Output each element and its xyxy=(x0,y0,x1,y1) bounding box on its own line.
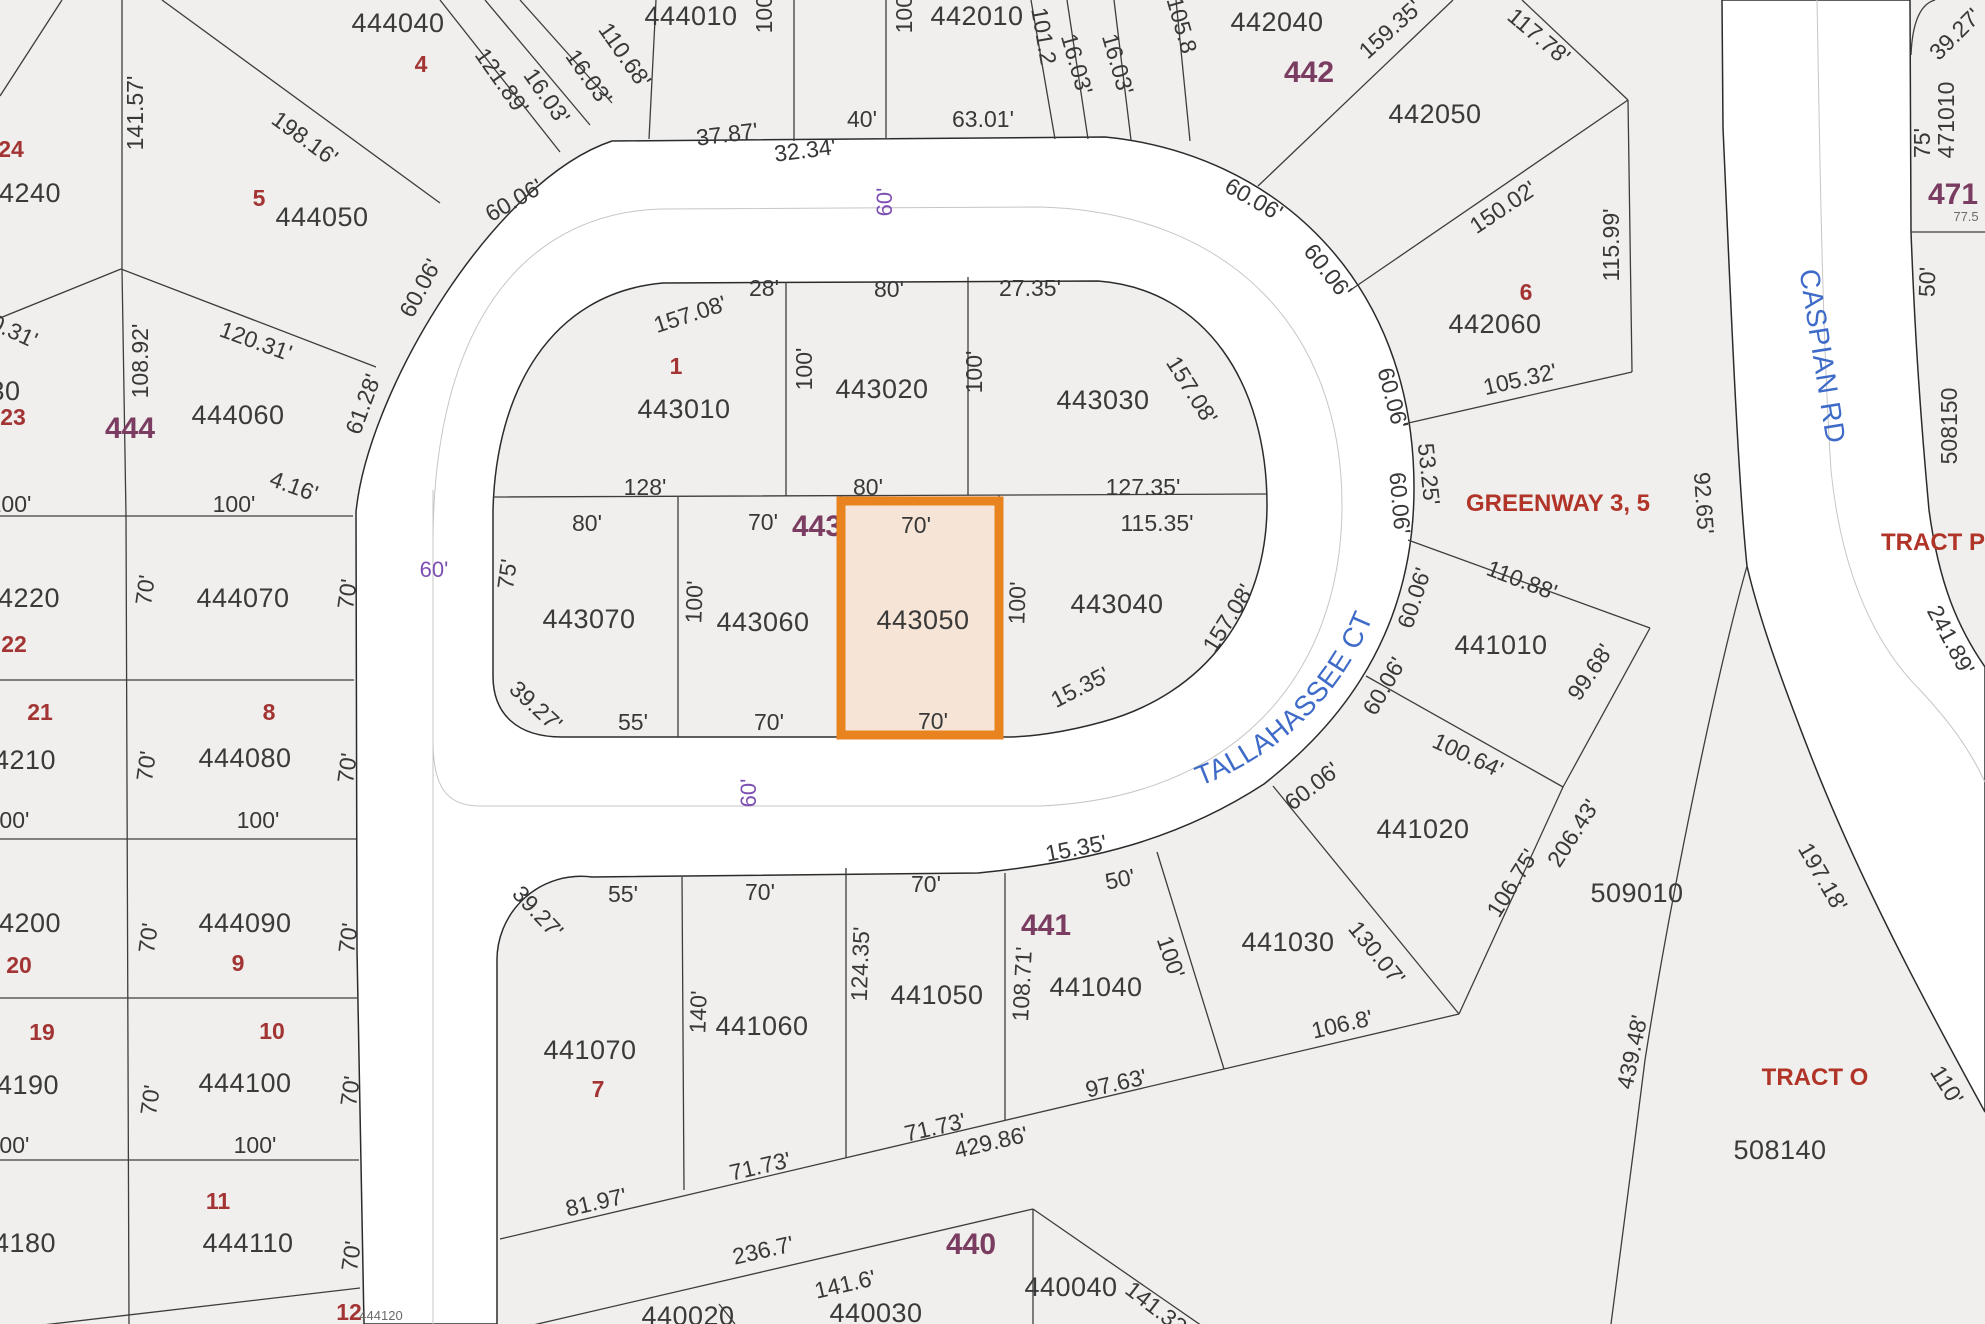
svg-text:443050: 443050 xyxy=(876,605,969,635)
svg-text:115.99': 115.99' xyxy=(1598,208,1624,281)
svg-text:443060: 443060 xyxy=(716,607,809,637)
svg-text:444050: 444050 xyxy=(275,202,368,232)
svg-text:440020: 440020 xyxy=(641,1301,734,1324)
svg-text:444100: 444100 xyxy=(198,1068,291,1098)
svg-text:441: 441 xyxy=(1021,909,1071,942)
svg-text:509010: 509010 xyxy=(1590,878,1683,908)
svg-text:60': 60' xyxy=(736,779,761,808)
svg-text:442010: 442010 xyxy=(930,1,1023,31)
svg-text:70': 70' xyxy=(131,749,161,782)
svg-text:12: 12 xyxy=(336,1299,362,1324)
svg-text:22: 22 xyxy=(1,631,27,657)
svg-text:27.35': 27.35' xyxy=(999,275,1061,301)
svg-text:100': 100' xyxy=(791,348,817,391)
svg-text:1: 1 xyxy=(670,353,683,379)
svg-text:75': 75' xyxy=(1909,128,1935,158)
svg-text:444070: 444070 xyxy=(196,583,289,613)
svg-text:441030: 441030 xyxy=(1241,927,1334,957)
svg-text:30: 30 xyxy=(0,376,21,406)
svg-text:442060: 442060 xyxy=(1448,309,1541,339)
svg-text:92.65': 92.65' xyxy=(1689,471,1719,535)
svg-text:444090: 444090 xyxy=(198,908,291,938)
svg-text:141.57': 141.57' xyxy=(122,76,148,151)
svg-text:55': 55' xyxy=(618,709,648,735)
svg-text:442050: 442050 xyxy=(1388,99,1481,129)
svg-text:440: 440 xyxy=(946,1228,996,1261)
svg-text:7: 7 xyxy=(592,1076,605,1102)
svg-text:GREENWAY 3, 5: GREENWAY 3, 5 xyxy=(1466,490,1650,517)
svg-text:443030: 443030 xyxy=(1056,385,1149,415)
svg-text:443040: 443040 xyxy=(1070,589,1163,619)
svg-text:100': 100' xyxy=(1003,581,1030,625)
svg-text:70': 70' xyxy=(133,921,163,954)
svg-text:19: 19 xyxy=(29,1019,55,1045)
svg-text:TRACT P: TRACT P xyxy=(1881,529,1985,556)
svg-text:70': 70' xyxy=(336,1239,366,1272)
svg-text:444040: 444040 xyxy=(351,8,444,38)
svg-text:441060: 441060 xyxy=(715,1011,808,1041)
svg-text:11: 11 xyxy=(206,1188,231,1214)
svg-text:100': 100' xyxy=(751,0,777,33)
svg-text:444110: 444110 xyxy=(202,1228,293,1258)
svg-text:124.35': 124.35' xyxy=(846,926,875,1002)
svg-text:442: 442 xyxy=(1284,56,1334,89)
svg-text:443070: 443070 xyxy=(542,604,635,634)
svg-text:70': 70' xyxy=(333,921,363,954)
svg-text:100': 100' xyxy=(237,807,280,833)
svg-text:70': 70' xyxy=(332,577,362,610)
svg-text:70': 70' xyxy=(745,879,775,905)
svg-text:4220: 4220 xyxy=(0,583,60,613)
svg-text:471010: 471010 xyxy=(1933,82,1959,159)
svg-text:115.35': 115.35' xyxy=(1120,510,1193,536)
svg-text:6: 6 xyxy=(1520,279,1533,305)
svg-text:100': 100' xyxy=(0,1132,29,1158)
svg-text:20: 20 xyxy=(6,952,32,978)
svg-text:441040: 441040 xyxy=(1049,972,1142,1002)
svg-text:443: 443 xyxy=(792,510,842,543)
svg-text:108.92': 108.92' xyxy=(127,324,153,399)
svg-text:444120: 444120 xyxy=(359,1308,402,1323)
svg-text:4240: 4240 xyxy=(0,178,61,208)
svg-text:60.06': 60.06' xyxy=(1384,471,1415,535)
svg-text:70': 70' xyxy=(911,871,941,897)
svg-text:100': 100' xyxy=(213,491,256,517)
svg-text:21: 21 xyxy=(27,699,53,725)
svg-text:4200: 4200 xyxy=(0,908,61,938)
svg-text:75': 75' xyxy=(492,557,522,590)
svg-text:443010: 443010 xyxy=(637,394,730,424)
svg-text:60': 60' xyxy=(872,188,897,217)
svg-text:23: 23 xyxy=(0,404,26,430)
svg-text:70': 70' xyxy=(754,709,784,735)
svg-text:80': 80' xyxy=(874,276,904,302)
svg-text:77.5: 77.5 xyxy=(1953,209,1978,224)
svg-text:55': 55' xyxy=(608,881,638,907)
svg-text:50': 50' xyxy=(1913,267,1940,298)
svg-text:TRACT O: TRACT O xyxy=(1762,1064,1869,1091)
svg-text:70': 70' xyxy=(332,751,362,784)
svg-text:440040: 440040 xyxy=(1024,1272,1117,1302)
svg-text:10: 10 xyxy=(259,1018,285,1044)
svg-text:70': 70' xyxy=(901,512,931,538)
svg-text:4: 4 xyxy=(415,51,428,77)
svg-text:443020: 443020 xyxy=(835,374,928,404)
svg-text:60': 60' xyxy=(420,557,449,582)
svg-text:100': 100' xyxy=(0,491,31,517)
svg-text:4190: 4190 xyxy=(0,1070,59,1100)
svg-text:4210: 4210 xyxy=(0,745,56,775)
svg-text:100': 100' xyxy=(0,807,29,833)
svg-text:8: 8 xyxy=(263,699,276,725)
svg-text:100': 100' xyxy=(891,0,917,33)
svg-text:70': 70' xyxy=(748,509,778,535)
svg-text:70': 70' xyxy=(918,708,948,734)
svg-text:442040: 442040 xyxy=(1230,7,1323,37)
svg-text:440030: 440030 xyxy=(829,1298,922,1324)
svg-text:70': 70' xyxy=(135,1083,165,1116)
svg-text:108.71': 108.71' xyxy=(1007,946,1037,1022)
svg-text:5: 5 xyxy=(253,185,266,211)
svg-text:128': 128' xyxy=(624,474,667,500)
svg-text:441070: 441070 xyxy=(543,1035,636,1065)
svg-text:24: 24 xyxy=(0,136,24,162)
svg-text:80': 80' xyxy=(572,510,602,536)
svg-text:444080: 444080 xyxy=(198,743,291,773)
svg-text:28': 28' xyxy=(749,275,779,301)
svg-text:441020: 441020 xyxy=(1376,814,1469,844)
svg-text:508150: 508150 xyxy=(1936,388,1962,465)
svg-text:70': 70' xyxy=(130,573,160,606)
svg-text:508140: 508140 xyxy=(1733,1135,1826,1165)
svg-text:441010: 441010 xyxy=(1454,630,1547,660)
svg-text:4180: 4180 xyxy=(0,1228,56,1258)
svg-text:40': 40' xyxy=(847,106,877,132)
svg-text:80': 80' xyxy=(853,474,883,500)
svg-text:100': 100' xyxy=(680,580,707,624)
svg-text:127.35': 127.35' xyxy=(1106,474,1181,500)
svg-text:441050: 441050 xyxy=(890,980,983,1010)
svg-text:9: 9 xyxy=(232,950,245,976)
svg-text:140': 140' xyxy=(684,990,711,1034)
svg-text:444: 444 xyxy=(105,412,155,445)
svg-text:100': 100' xyxy=(961,351,987,394)
svg-text:100': 100' xyxy=(234,1132,277,1158)
svg-text:444010: 444010 xyxy=(644,1,737,31)
svg-text:471: 471 xyxy=(1928,178,1978,211)
svg-text:70': 70' xyxy=(335,1074,365,1107)
svg-text:444060: 444060 xyxy=(191,400,284,430)
svg-text:63.01': 63.01' xyxy=(952,106,1014,132)
